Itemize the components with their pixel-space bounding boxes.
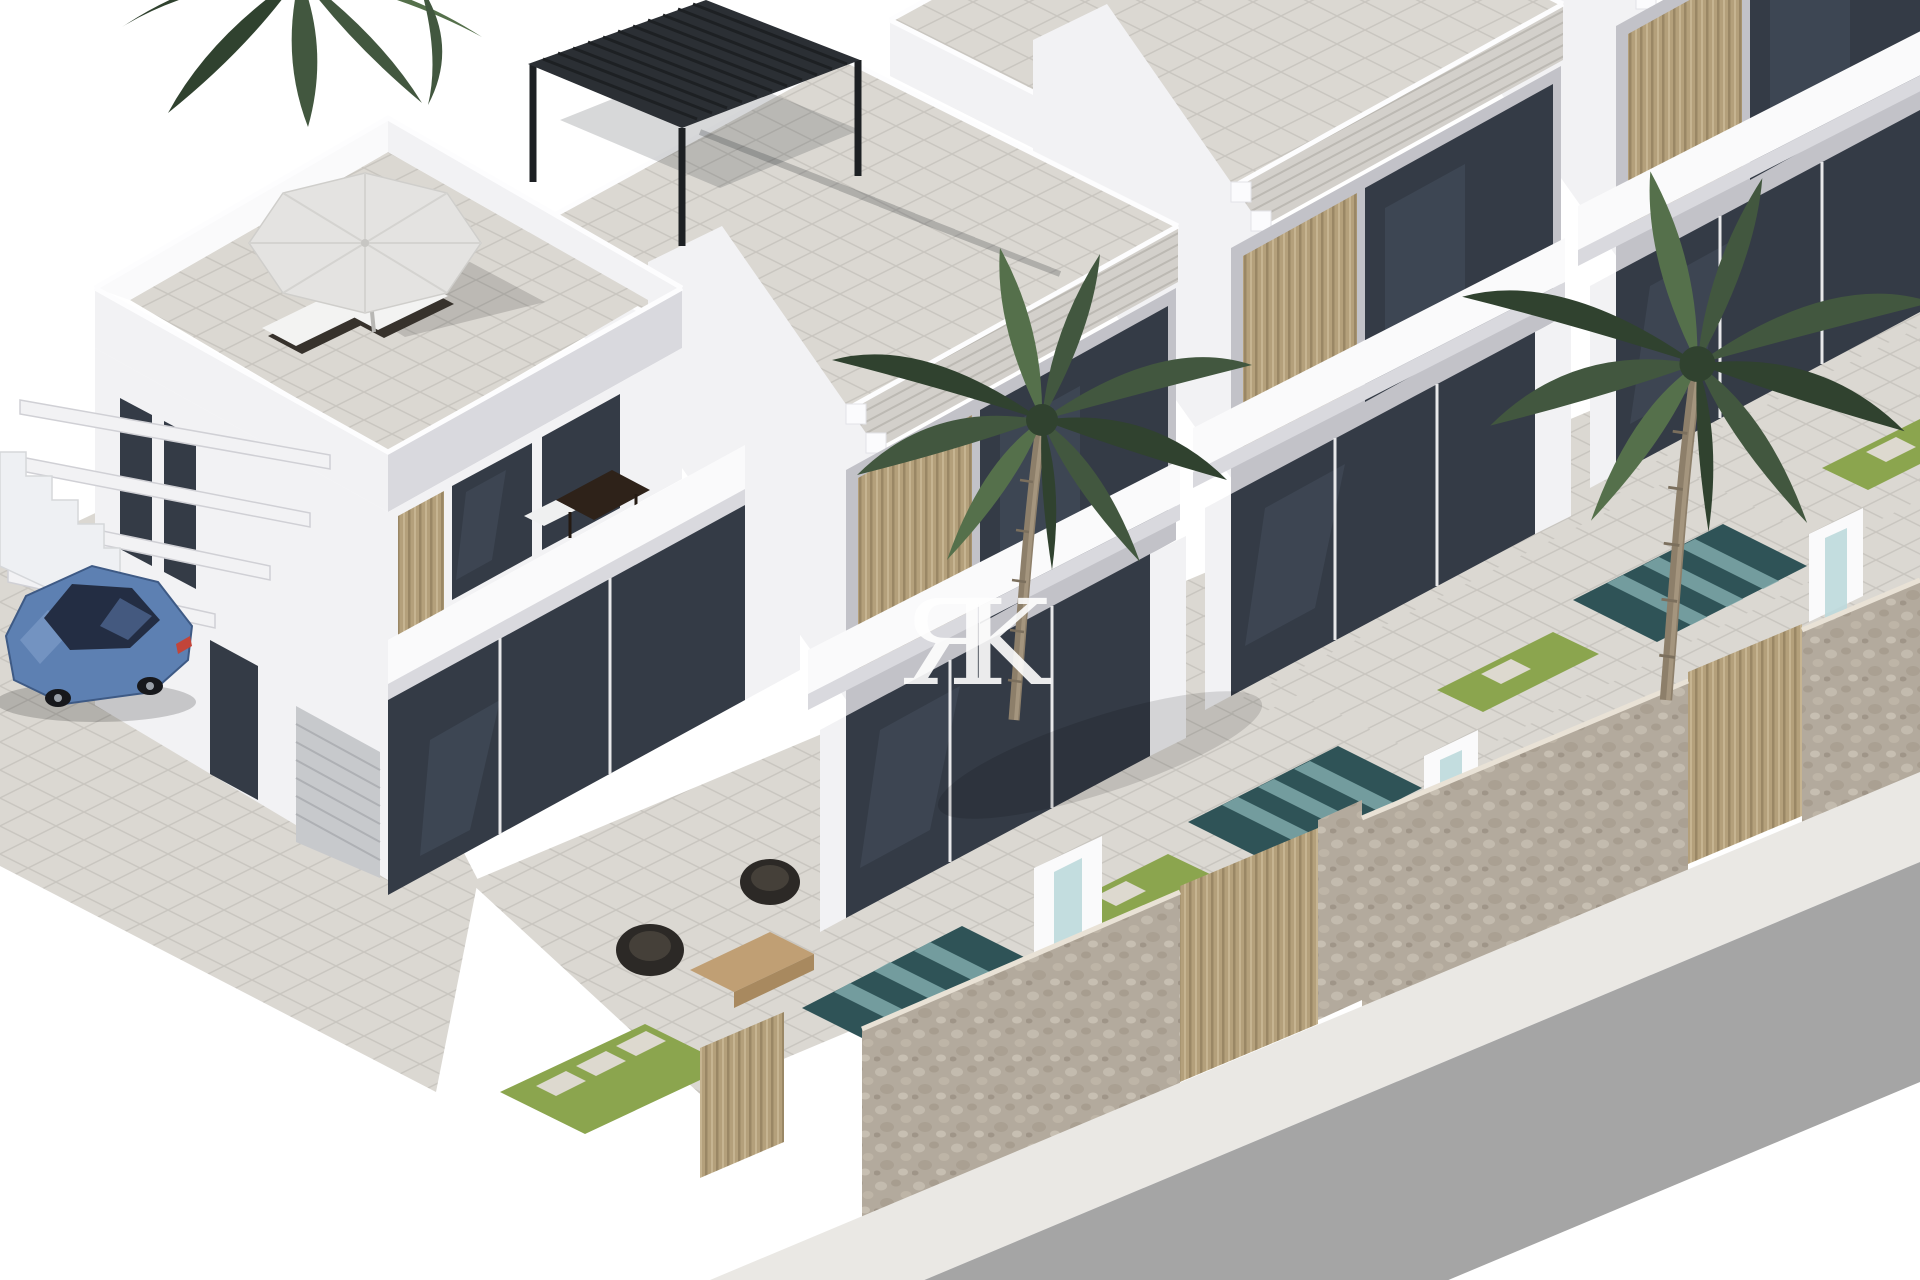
villa-pier-right xyxy=(745,475,800,700)
wheel-hub xyxy=(146,682,154,690)
wicker-chair-cushion xyxy=(629,931,671,961)
stone-pillar xyxy=(1318,800,1362,1020)
wheel-hub xyxy=(54,694,62,702)
parasol-finial xyxy=(361,239,369,247)
villa-entry-glass-door xyxy=(210,640,258,800)
render-canvas: ЯK xyxy=(0,0,1920,1280)
wicker-chair-cushion xyxy=(751,865,789,891)
architectural-render: ЯK xyxy=(0,0,1920,1280)
